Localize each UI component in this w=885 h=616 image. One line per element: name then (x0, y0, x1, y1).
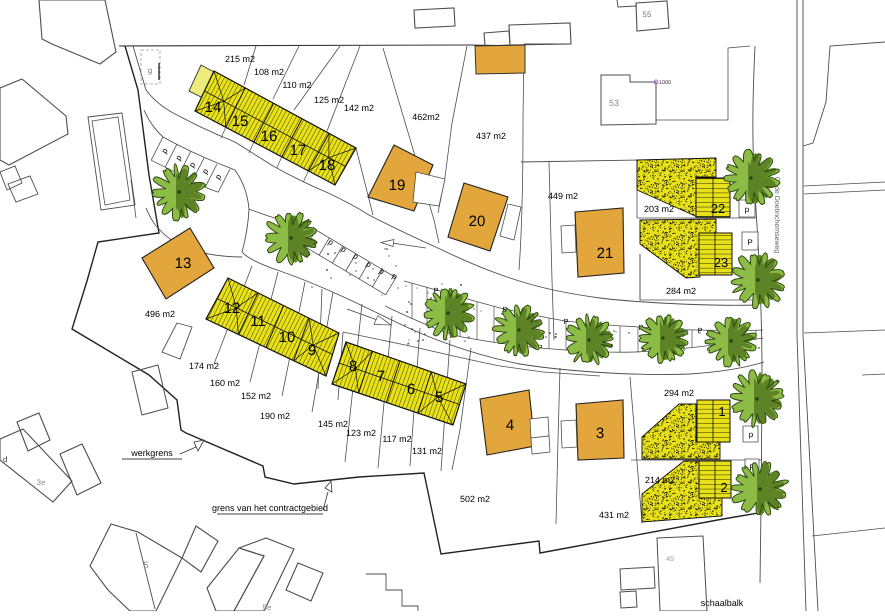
svg-text:17: 17 (290, 142, 307, 159)
svg-text:11: 11 (250, 313, 266, 330)
svg-text:grens van het contractgebied: grens van het contractgebied (212, 503, 328, 513)
svg-text:496 m2: 496 m2 (145, 309, 175, 319)
svg-text:19: 19 (389, 177, 406, 194)
svg-text:p: p (745, 205, 750, 214)
svg-text:53: 53 (609, 98, 619, 108)
svg-text:1000: 1000 (659, 80, 671, 86)
svg-text:P: P (563, 317, 568, 326)
svg-text:8: 8 (349, 358, 357, 375)
svg-text:5: 5 (435, 389, 443, 406)
svg-text:125 m2: 125 m2 (314, 95, 344, 105)
svg-text:Oude Doetinchemseweg: Oude Doetinchemseweg (773, 177, 781, 254)
svg-text:294 m2: 294 m2 (664, 388, 694, 398)
svg-text:1: 1 (718, 404, 725, 419)
svg-text:g: g (148, 66, 152, 75)
svg-text:160 m2: 160 m2 (210, 378, 240, 388)
svg-text:16: 16 (261, 128, 278, 145)
svg-text:502 m2: 502 m2 (460, 494, 490, 504)
svg-text:123 m2: 123 m2 (346, 428, 376, 438)
svg-text:9: 9 (308, 342, 316, 359)
svg-text:12: 12 (224, 300, 241, 317)
svg-text:190 m2: 190 m2 (260, 411, 290, 421)
svg-text:174 m2: 174 m2 (189, 361, 219, 371)
svg-text:2: 2 (720, 480, 727, 495)
svg-text:5e: 5e (263, 603, 272, 611)
svg-text:23: 23 (714, 255, 728, 270)
svg-text:18: 18 (319, 157, 336, 174)
svg-text:145 m2: 145 m2 (318, 419, 348, 429)
svg-text:55: 55 (643, 10, 652, 19)
svg-text:108 m2: 108 m2 (254, 67, 284, 77)
svg-text:4: 4 (506, 417, 514, 434)
svg-text:431 m2: 431 m2 (599, 510, 629, 520)
svg-text:5: 5 (143, 560, 148, 570)
svg-text:437 m2: 437 m2 (476, 131, 506, 141)
svg-text:15: 15 (232, 113, 249, 130)
svg-text:284 m2: 284 m2 (666, 286, 696, 296)
svg-text:215 m2: 215 m2 (225, 54, 255, 64)
svg-text:P: P (697, 326, 702, 335)
svg-text:werkgrens: werkgrens (130, 448, 173, 458)
svg-text:d: d (3, 455, 7, 464)
svg-text:110 m2: 110 m2 (282, 80, 311, 90)
svg-text:22: 22 (711, 201, 725, 216)
svg-text:214 m2: 214 m2 (645, 475, 675, 485)
svg-text:7: 7 (377, 368, 385, 385)
svg-text:20: 20 (469, 213, 486, 230)
svg-text:10: 10 (279, 329, 296, 346)
svg-text:45: 45 (666, 556, 674, 563)
svg-text:449 m2: 449 m2 (548, 191, 578, 201)
svg-text:6: 6 (407, 381, 415, 398)
svg-text:3: 3 (596, 425, 604, 442)
svg-text:142 m2: 142 m2 (344, 103, 374, 113)
svg-text:131 m2: 131 m2 (412, 446, 442, 456)
svg-text:P: P (747, 238, 752, 247)
svg-text:13: 13 (175, 255, 192, 272)
svg-text:152 m2: 152 m2 (241, 391, 271, 401)
svg-text:21: 21 (597, 245, 614, 262)
svg-text:117 m2: 117 m2 (382, 434, 411, 444)
svg-text:14: 14 (205, 99, 222, 116)
svg-text:462m2: 462m2 (412, 112, 440, 122)
svg-text:3e: 3e (37, 478, 46, 487)
svg-text:p: p (749, 430, 754, 439)
svg-text:203 m2: 203 m2 (644, 204, 674, 214)
